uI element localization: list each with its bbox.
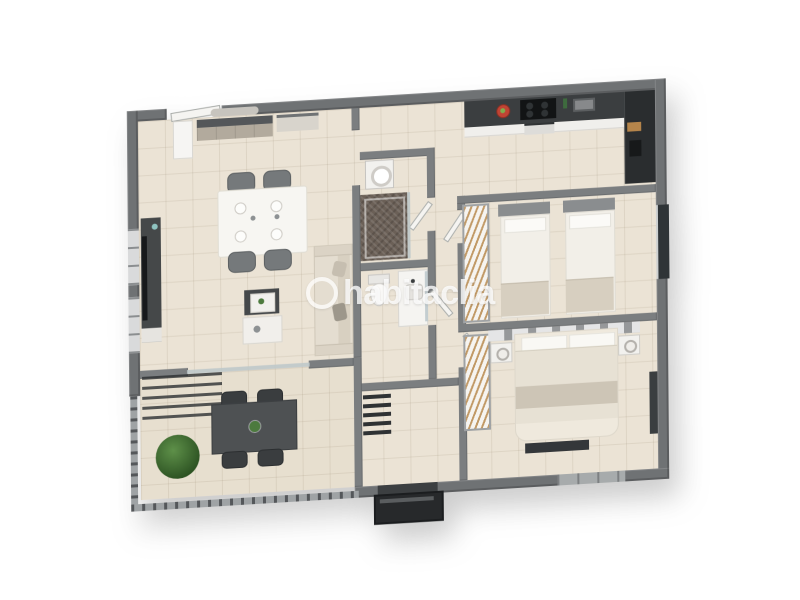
- dining-chair: [264, 248, 292, 271]
- twin-window: [656, 204, 670, 279]
- living-hall-wall-a: [351, 108, 359, 131]
- twin-bed-2: [565, 210, 616, 315]
- burner: [526, 102, 533, 109]
- place-setting: [234, 202, 246, 215]
- dining-table: [217, 185, 307, 258]
- burner: [526, 110, 533, 117]
- living-window-1: [128, 229, 139, 286]
- tv-unit-shelf: [142, 327, 162, 342]
- table-decor: [253, 325, 260, 332]
- entrance-door-box: [374, 491, 444, 525]
- nightstand-right: [618, 334, 640, 355]
- habitaclia-logo-icon: [306, 277, 338, 309]
- table-plant: [248, 420, 261, 434]
- shower: [360, 192, 407, 261]
- fruit: [500, 108, 505, 113]
- tall-white-cabinet: [173, 120, 193, 159]
- washing-machine: [365, 159, 394, 190]
- table-decor: [251, 216, 256, 221]
- shower-glass: [407, 192, 411, 258]
- hall-cabinet: [277, 113, 319, 133]
- corridor-left-wall-a: [427, 147, 435, 198]
- tv-unit: [141, 217, 162, 342]
- terrace-right-wall: [354, 357, 363, 487]
- habitaclia-watermark: habitaclia: [306, 276, 495, 310]
- place-setting: [271, 228, 283, 241]
- nightstand-left: [490, 342, 512, 363]
- coffee-machine: [629, 140, 641, 157]
- vase-decor: [152, 224, 158, 230]
- outdoor-chair: [258, 448, 284, 467]
- lamp: [496, 347, 509, 361]
- fridge-tall-units: [624, 90, 656, 184]
- slatted-shoe-rack: [363, 394, 391, 440]
- blanket: [501, 281, 549, 317]
- oven: [524, 122, 554, 135]
- burner: [541, 109, 548, 116]
- outdoor-table: [211, 399, 297, 454]
- place-setting: [270, 200, 282, 213]
- entrance-door-step: [380, 496, 434, 503]
- cooktop: [520, 98, 556, 120]
- lamp: [624, 339, 637, 353]
- living-window-2: [128, 297, 139, 354]
- bottle: [563, 98, 567, 108]
- floorplan-image: habitaclia: [0, 0, 800, 600]
- twin-bed-1: [500, 214, 551, 319]
- pillow: [504, 217, 546, 234]
- coffee-table-white: [242, 315, 282, 344]
- burner: [541, 101, 548, 108]
- outdoor-chair: [222, 450, 248, 469]
- corridor-left-wall-c: [428, 325, 436, 380]
- master-bed: [514, 328, 619, 442]
- terrace-railing-left: [130, 396, 138, 507]
- dining-chair: [228, 251, 256, 274]
- coffee-table-dark: [244, 288, 279, 315]
- television: [142, 236, 148, 320]
- washer-drum: [371, 165, 392, 187]
- blanket: [566, 277, 614, 313]
- pergola-slats: [142, 372, 222, 425]
- place-setting: [235, 230, 247, 243]
- table-decor: [274, 214, 279, 219]
- master-wardrobe-hangers: [463, 333, 491, 431]
- microwave: [573, 98, 595, 112]
- pillow: [569, 213, 611, 230]
- cutting-board: [627, 122, 641, 132]
- sofa-armrest: [316, 343, 353, 355]
- watermark-text: habitaclia: [343, 276, 495, 310]
- shower-tray: [364, 196, 405, 259]
